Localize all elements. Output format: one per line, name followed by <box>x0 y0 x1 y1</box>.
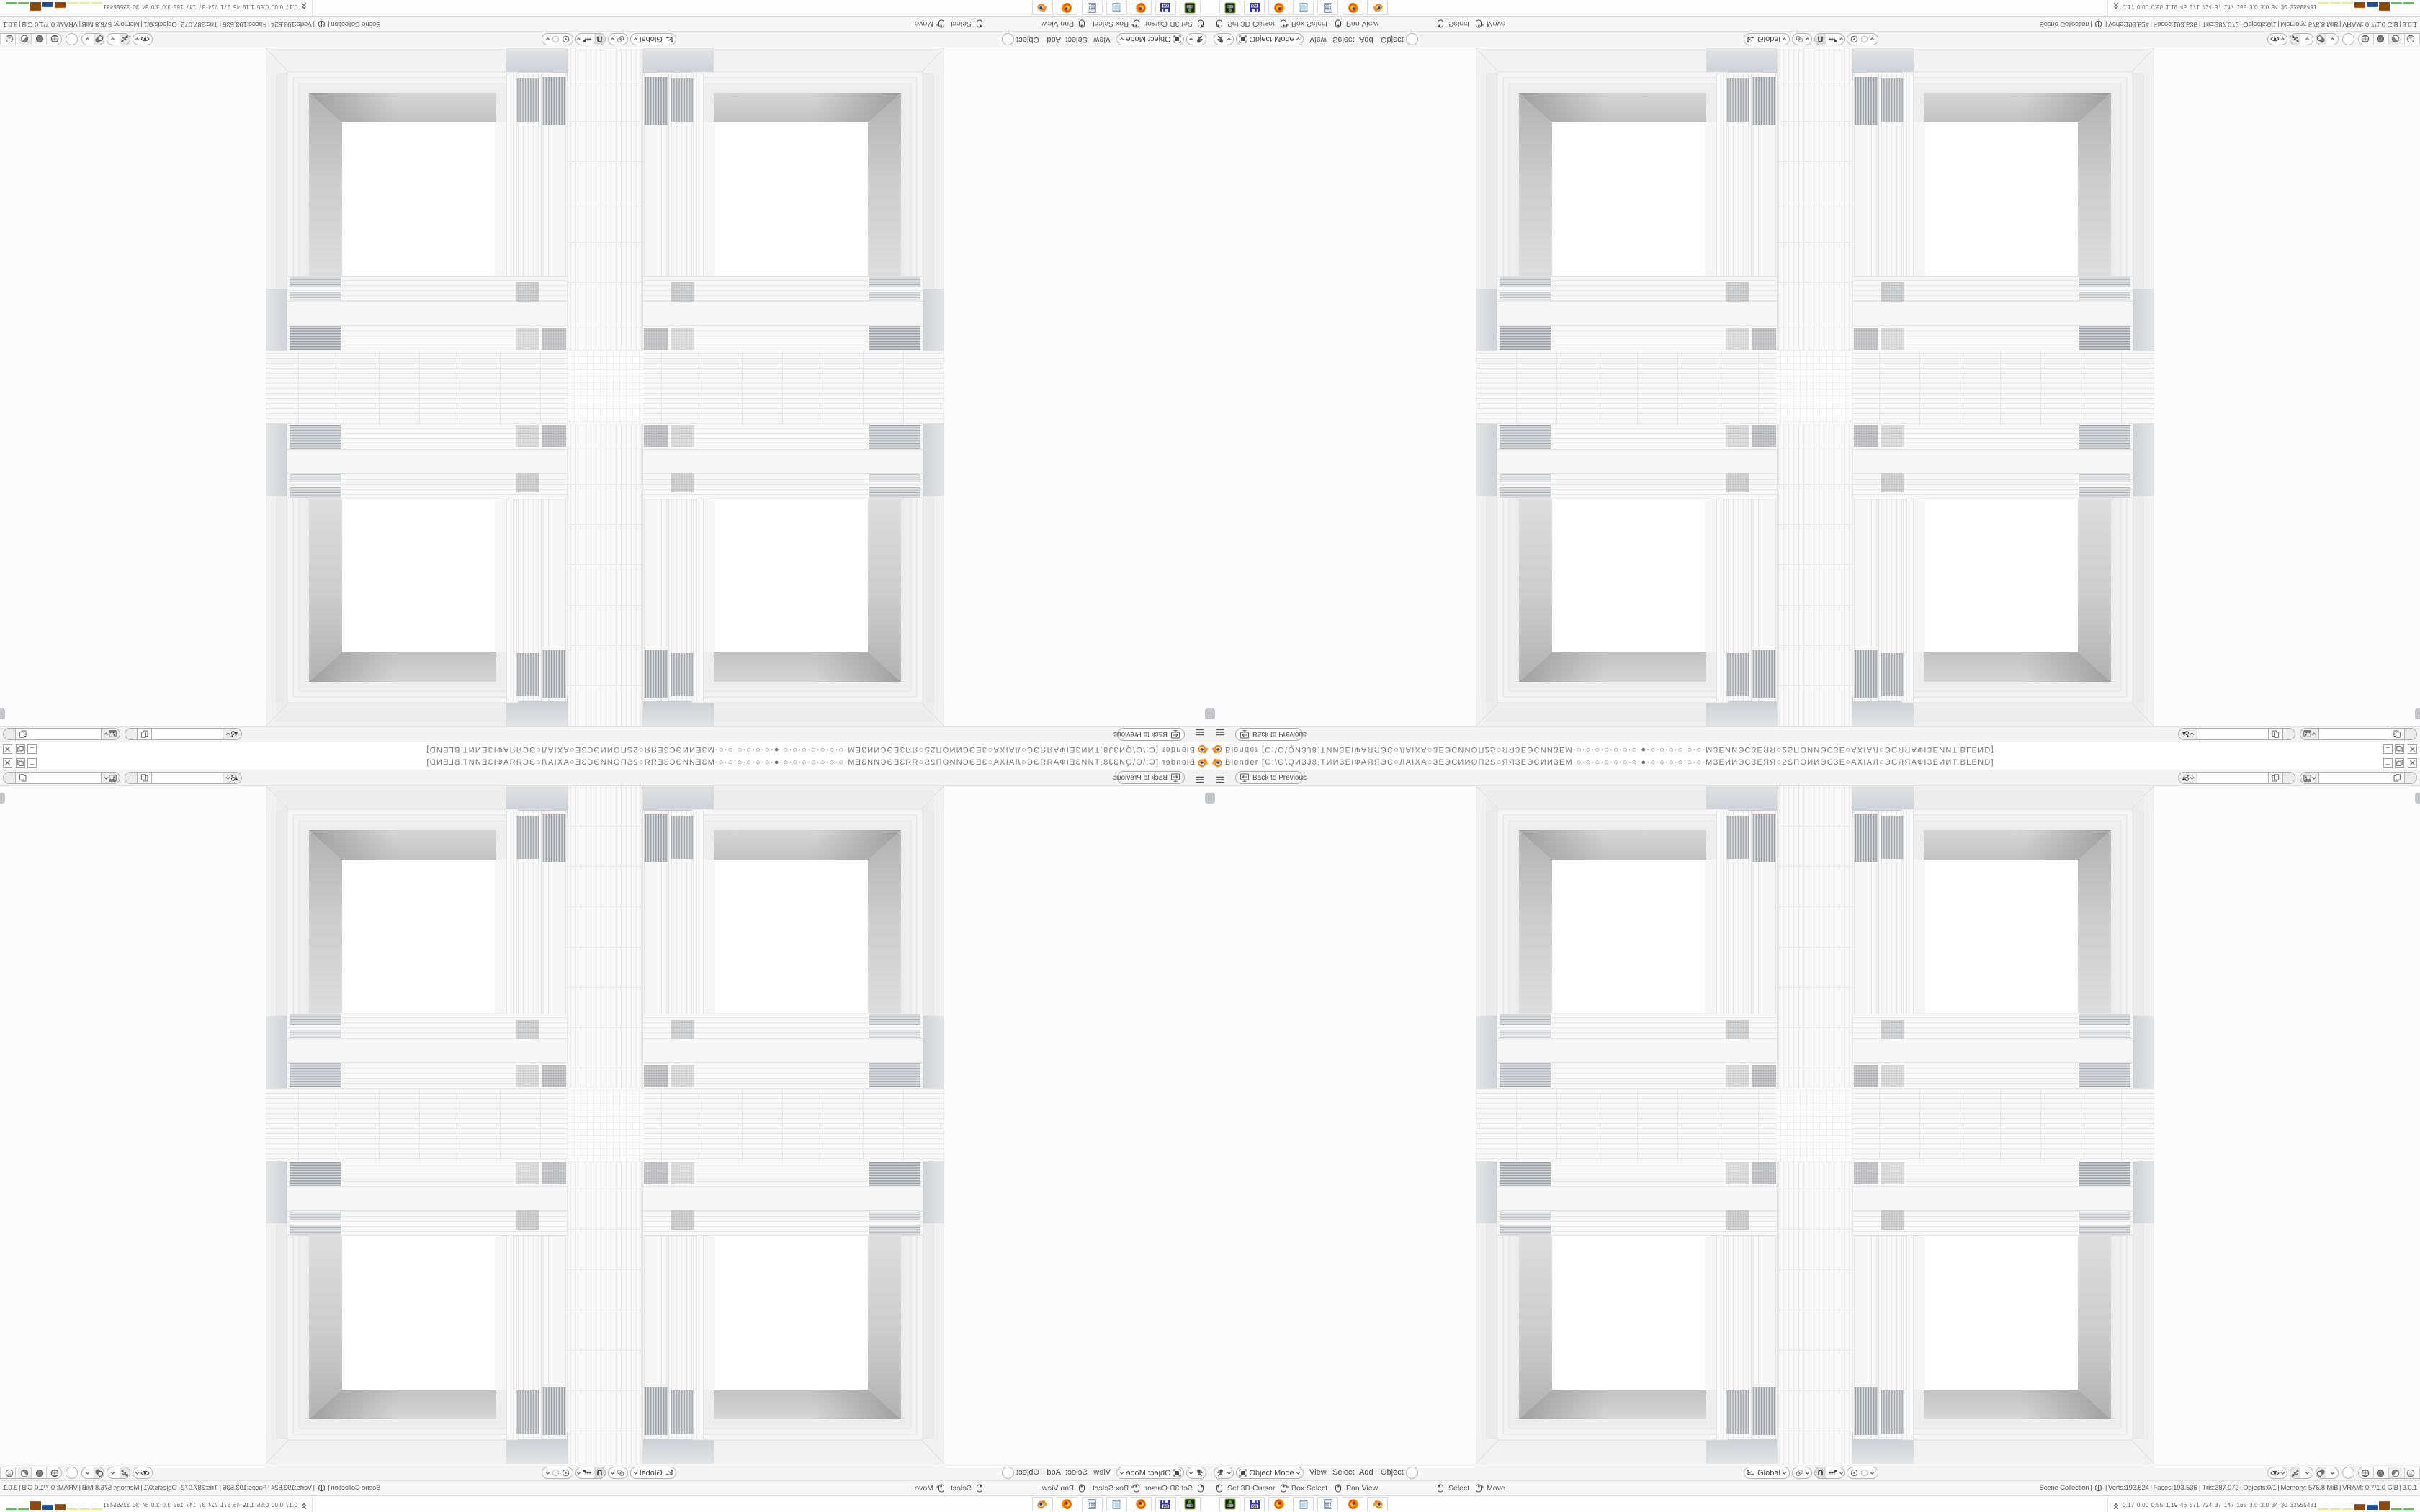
svg-text:64: 64 <box>1163 1505 1168 1509</box>
svg-text:64: 64 <box>1252 3 1257 7</box>
svg-text:64: 64 <box>1163 3 1168 7</box>
svg-text:64: 64 <box>1252 1505 1257 1509</box>
